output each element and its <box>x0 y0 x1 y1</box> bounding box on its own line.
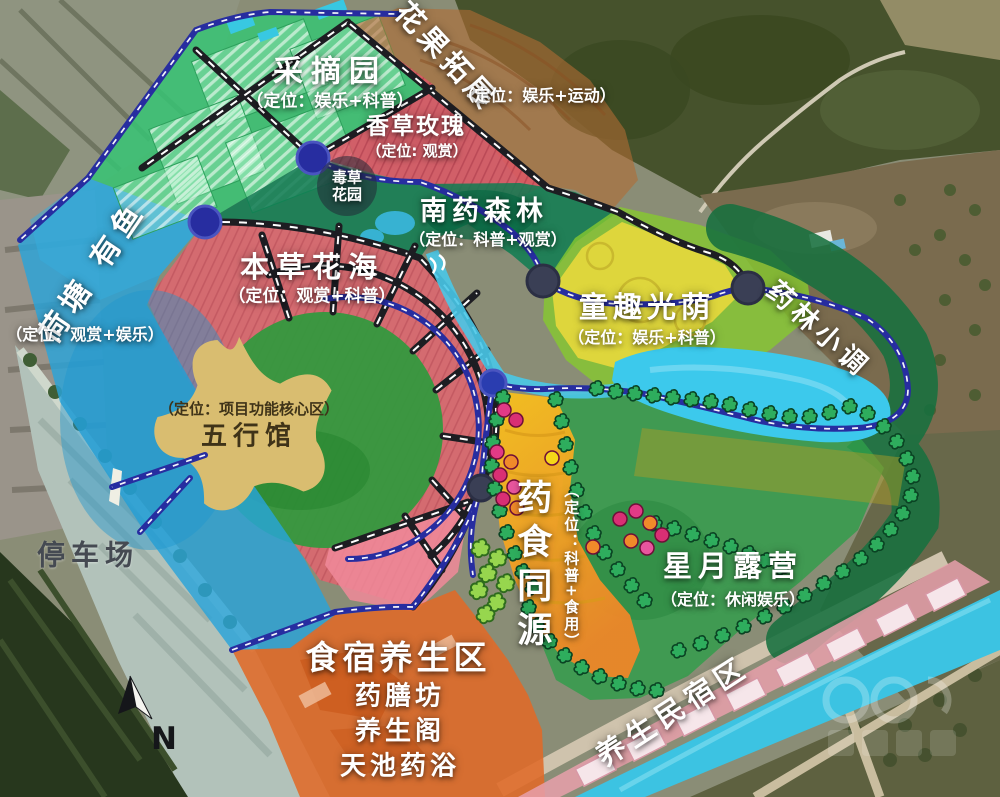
tree-icon <box>586 526 601 541</box>
tree-icon <box>876 419 891 434</box>
tree-icon <box>899 451 914 466</box>
tree-icon <box>853 551 868 566</box>
flower-icon <box>493 468 507 482</box>
tree-icon <box>703 394 718 409</box>
label-vanilla-rose-sub: （定位: 观赏） <box>366 143 467 160</box>
label-camping: 星月露营 <box>663 551 803 583</box>
tree-icon <box>684 392 699 407</box>
tree-icon <box>742 402 757 417</box>
flower-icon <box>509 413 523 427</box>
tree-icon <box>592 669 607 684</box>
label-lotus-pond-sub: （定位：观赏+娱乐） <box>6 326 163 344</box>
label-dining-wellness: 食宿养生区 <box>306 640 491 676</box>
label-dining-item-3: 天池药浴 <box>340 753 460 782</box>
tree-icon <box>905 469 920 484</box>
tree-icon <box>860 406 875 421</box>
label-childhood: 童趣光荫 <box>579 292 715 324</box>
label-five-elements-sub: （定位：项目功能核心区） <box>159 401 339 418</box>
label-five-elements: 五行馆 <box>201 423 297 452</box>
tree-icon <box>704 533 719 548</box>
leaf-cluster-icon <box>472 539 490 557</box>
flower-icon <box>497 403 511 417</box>
tree-icon <box>624 578 639 593</box>
label-picking-garden: 采摘园 <box>273 56 387 89</box>
label-medicine-food: 药食同源 <box>512 479 551 655</box>
tree-icon <box>548 392 563 407</box>
tree-icon <box>762 406 777 421</box>
flower-icon <box>545 451 559 465</box>
compass-letter: N <box>151 722 177 756</box>
tree-icon <box>646 388 661 403</box>
label-flower-fruit-sub: （定位：娱乐+运动） <box>458 87 615 105</box>
tree-icon <box>816 576 831 591</box>
tree-icon <box>637 593 652 608</box>
tree-icon <box>869 537 884 552</box>
tree-icon <box>883 522 898 537</box>
tree-icon <box>782 409 797 424</box>
flower-icon <box>496 492 510 506</box>
label-camping-sub: （定位：休闲娱乐） <box>661 591 805 609</box>
map-canvas <box>0 0 1000 797</box>
label-poison-garden: 毒草 花园 <box>332 170 362 203</box>
master-plan-map: 采摘园 （定位：娱乐+科普） 花果拓展 （定位：娱乐+运动） 香草玫瑰 （定位:… <box>0 0 1000 797</box>
label-flower-sea: 本草花海 <box>240 252 384 284</box>
tree-icon <box>903 488 918 503</box>
label-childhood-sub: （定位：娱乐+科普） <box>568 329 725 347</box>
label-medicine-food-sub: （定位：科普+食用） <box>563 482 580 650</box>
leaf-cluster-icon <box>479 564 497 582</box>
tree-icon <box>736 619 751 634</box>
label-parking: 停车场 <box>37 541 139 572</box>
poison-line1: 毒草 <box>332 170 362 187</box>
tree-icon <box>649 683 664 698</box>
poison-line2: 花园 <box>332 186 362 203</box>
tree-icon <box>685 527 700 542</box>
label-dining-item-1: 药膳坊 <box>355 683 445 712</box>
tree-icon <box>627 386 642 401</box>
tree-icon <box>589 381 604 396</box>
tree-icon <box>608 384 623 399</box>
leaf-cluster-icon <box>470 581 488 599</box>
label-south-forest-sub: （定位：科普+观赏） <box>409 231 566 249</box>
tree-icon <box>889 434 904 449</box>
tree-icon <box>822 405 837 420</box>
flower-icon <box>624 534 638 548</box>
tree-icon <box>835 564 850 579</box>
label-vanilla-rose: 香草玫瑰 <box>366 114 466 139</box>
tree-icon <box>630 681 645 696</box>
label-dining-item-2: 养生阁 <box>355 718 445 747</box>
flower-icon <box>629 504 643 518</box>
flower-icon <box>586 540 600 554</box>
roundabout <box>527 265 559 297</box>
flower-icon <box>504 455 518 469</box>
flower-icon <box>640 541 654 555</box>
tree-icon <box>671 643 686 658</box>
tree-icon <box>611 676 626 691</box>
tree-icon <box>802 409 817 424</box>
tree-icon <box>722 397 737 412</box>
tree-icon <box>895 506 910 521</box>
tree-icon <box>554 414 569 429</box>
tree-icon <box>665 390 680 405</box>
tree-icon <box>757 609 772 624</box>
flower-icon <box>655 528 669 542</box>
label-picking-garden-sub: （定位：娱乐+科普） <box>246 93 413 112</box>
tree-icon <box>563 460 578 475</box>
label-flower-sea-sub: （定位：观赏+科普） <box>228 288 395 307</box>
tree-icon <box>715 628 730 643</box>
tree-icon <box>558 437 573 452</box>
flower-icon <box>643 516 657 530</box>
leaf-cluster-icon <box>477 605 495 623</box>
label-south-forest: 南药森林 <box>420 197 548 227</box>
tree-icon <box>574 660 589 675</box>
tree-icon <box>842 399 857 414</box>
flower-icon <box>490 445 504 459</box>
roundabout <box>189 206 221 238</box>
tree-icon <box>610 562 625 577</box>
tree-icon <box>693 636 708 651</box>
roundabout <box>732 272 764 304</box>
flower-icon <box>613 512 627 526</box>
